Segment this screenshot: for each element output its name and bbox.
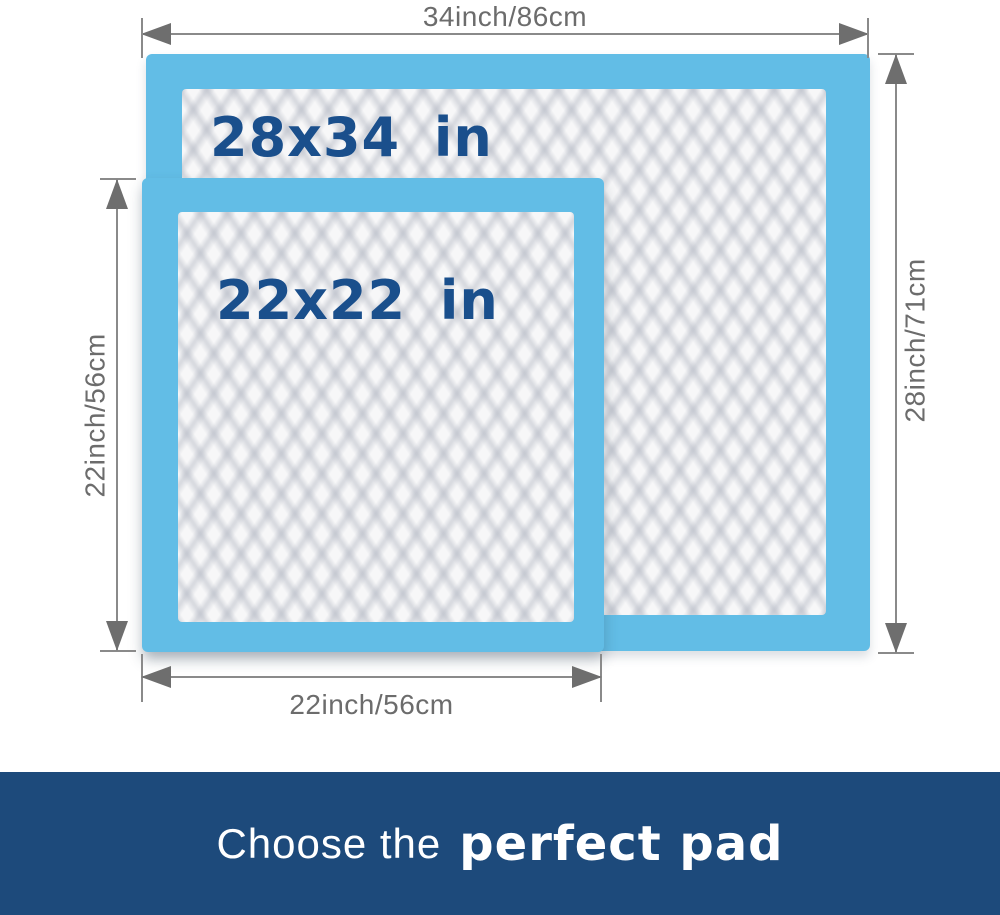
dimension-right-line [895, 55, 897, 652]
dimension-left: 22inch/56cm [84, 178, 136, 652]
dimension-top-line [142, 33, 868, 35]
pad-small: 22x22 in [142, 178, 604, 652]
dimension-top-tick-left [141, 18, 143, 58]
dimension-top-tick-right [867, 18, 869, 58]
banner-text-prefix: Choose the [216, 820, 441, 868]
dimension-bottom: 22inch/56cm [141, 652, 602, 722]
banner-text-emphasis: perfect pad [459, 816, 783, 872]
dimension-left-label: 22inch/56cm [81, 215, 112, 615]
dimension-right: 28inch/71cm [878, 53, 918, 654]
pad-large-size-label: 28x34 in [210, 111, 493, 165]
pad-size-infographic: 28x34 in 22x22 in 34inch/86cm 28inch/71c… [0, 0, 1000, 915]
arrowhead-right-icon [839, 23, 869, 45]
arrowhead-left-icon [141, 23, 171, 45]
dimension-top: 34inch/86cm [141, 2, 869, 60]
dimension-top-label: 34inch/86cm [141, 2, 869, 33]
banner: Choose the perfect pad [0, 772, 1000, 915]
arrowhead-down-icon [885, 623, 907, 653]
dimension-bottom-label: 22inch/56cm [141, 690, 602, 721]
pad-small-quilted-surface: 22x22 in [178, 212, 574, 622]
dimension-bottom-line [142, 676, 601, 678]
arrowhead-right-icon [572, 666, 602, 688]
dimension-left-line [116, 180, 118, 650]
arrowhead-up-icon [885, 54, 907, 84]
arrowhead-left-icon [141, 666, 171, 688]
arrowhead-down-icon [106, 621, 128, 651]
dimension-right-label: 28inch/71cm [901, 140, 932, 540]
pad-small-size-label: 22x22 in [216, 274, 499, 328]
arrowhead-up-icon [106, 179, 128, 209]
